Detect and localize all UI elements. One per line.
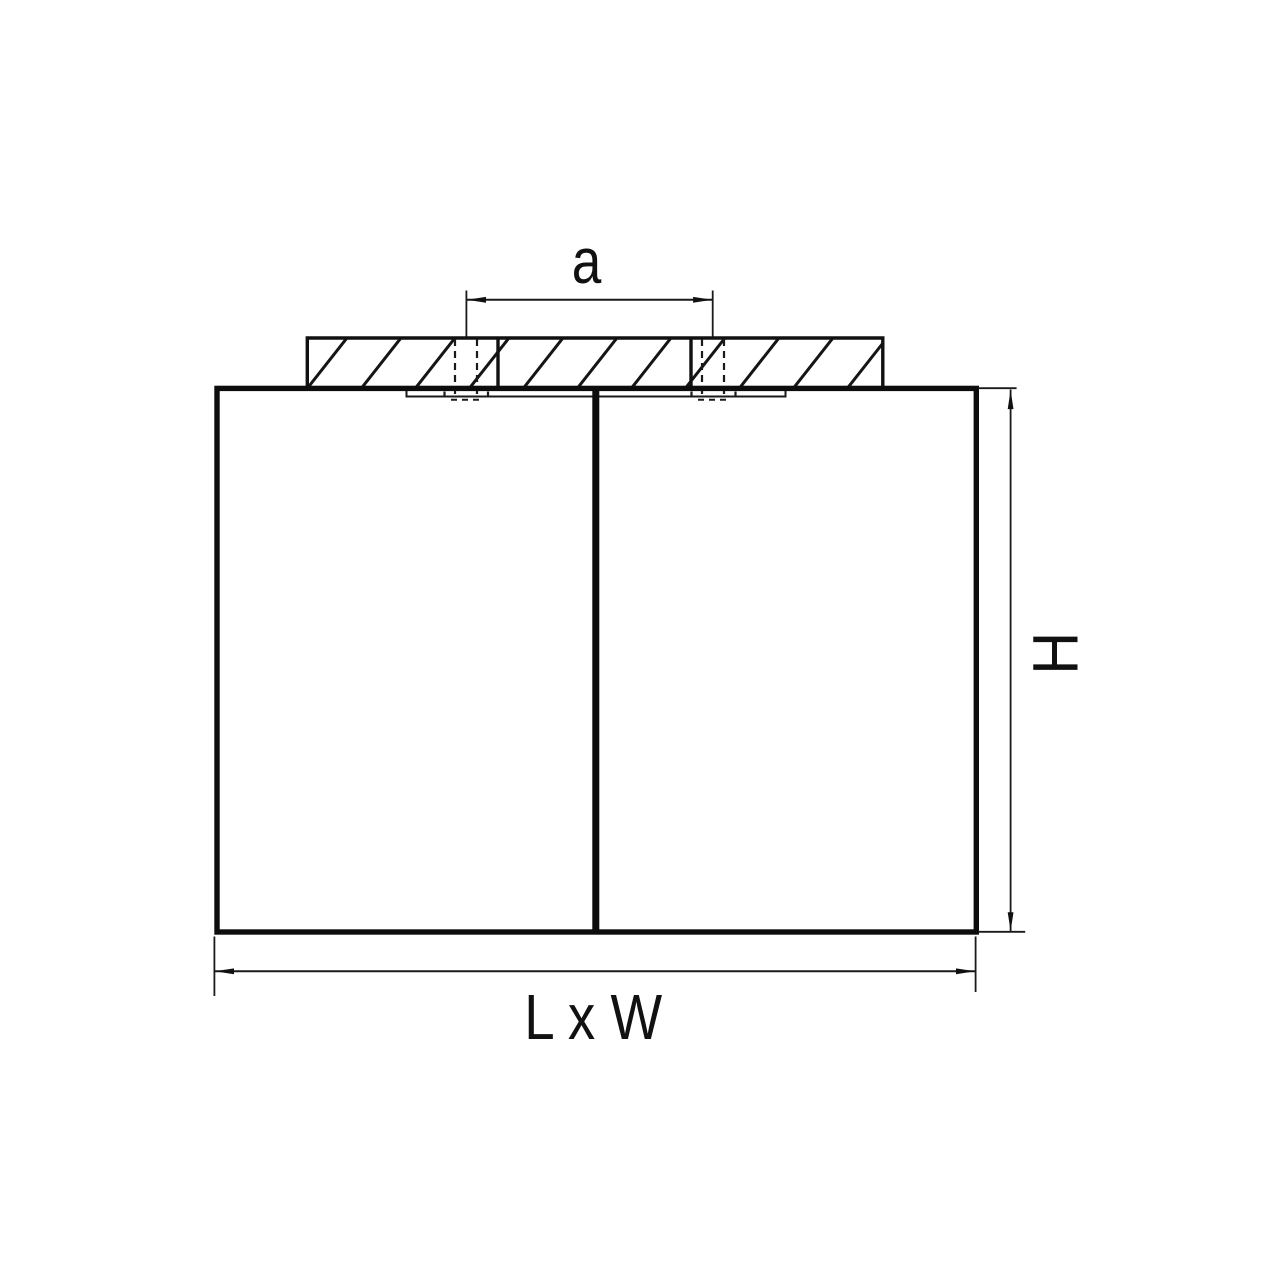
svg-text:H: H <box>1021 632 1092 675</box>
svg-text:a: a <box>572 226 602 297</box>
svg-text:L x W: L x W <box>524 981 662 1053</box>
